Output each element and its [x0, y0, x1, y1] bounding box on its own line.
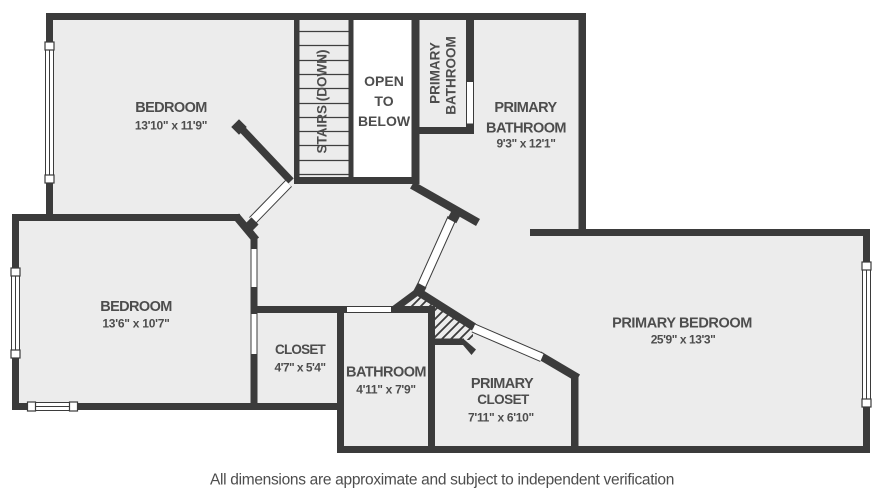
- svg-text:7'11" x 6'10": 7'11" x 6'10": [468, 411, 534, 425]
- svg-text:PRIMARY BEDROOM: PRIMARY BEDROOM: [612, 316, 752, 332]
- svg-text:OPEN: OPEN: [364, 73, 404, 89]
- svg-text:CLOSET: CLOSET: [275, 342, 327, 357]
- svg-text:4'11" x 7'9": 4'11" x 7'9": [356, 383, 416, 397]
- svg-text:PRIMARY: PRIMARY: [428, 42, 443, 104]
- svg-text:BATHROOM: BATHROOM: [346, 365, 426, 381]
- svg-text:TO: TO: [374, 93, 393, 109]
- svg-text:13'10" x 11'9": 13'10" x 11'9": [135, 119, 207, 133]
- svg-text:PRIMARY: PRIMARY: [494, 100, 557, 116]
- svg-text:25'9" x 13'3": 25'9" x 13'3": [651, 333, 716, 347]
- svg-text:STAIRS (DOWN): STAIRS (DOWN): [315, 50, 330, 154]
- svg-text:BATHROOM: BATHROOM: [486, 121, 566, 137]
- svg-text:BEDROOM: BEDROOM: [100, 299, 172, 315]
- svg-text:PRIMARY: PRIMARY: [471, 376, 534, 392]
- svg-text:CLOSET: CLOSET: [477, 392, 530, 407]
- svg-text:BELOW: BELOW: [358, 113, 411, 129]
- svg-text:All dimensions are approximate: All dimensions are approximate and subje…: [210, 472, 674, 489]
- svg-text:BEDROOM: BEDROOM: [135, 100, 207, 116]
- svg-text:13'6" x 10'7": 13'6" x 10'7": [102, 317, 169, 331]
- svg-text:4'7" x 5'4": 4'7" x 5'4": [274, 361, 325, 375]
- svg-text:9'3" x 12'1": 9'3" x 12'1": [497, 137, 556, 151]
- svg-text:BATHROOM: BATHROOM: [444, 36, 459, 115]
